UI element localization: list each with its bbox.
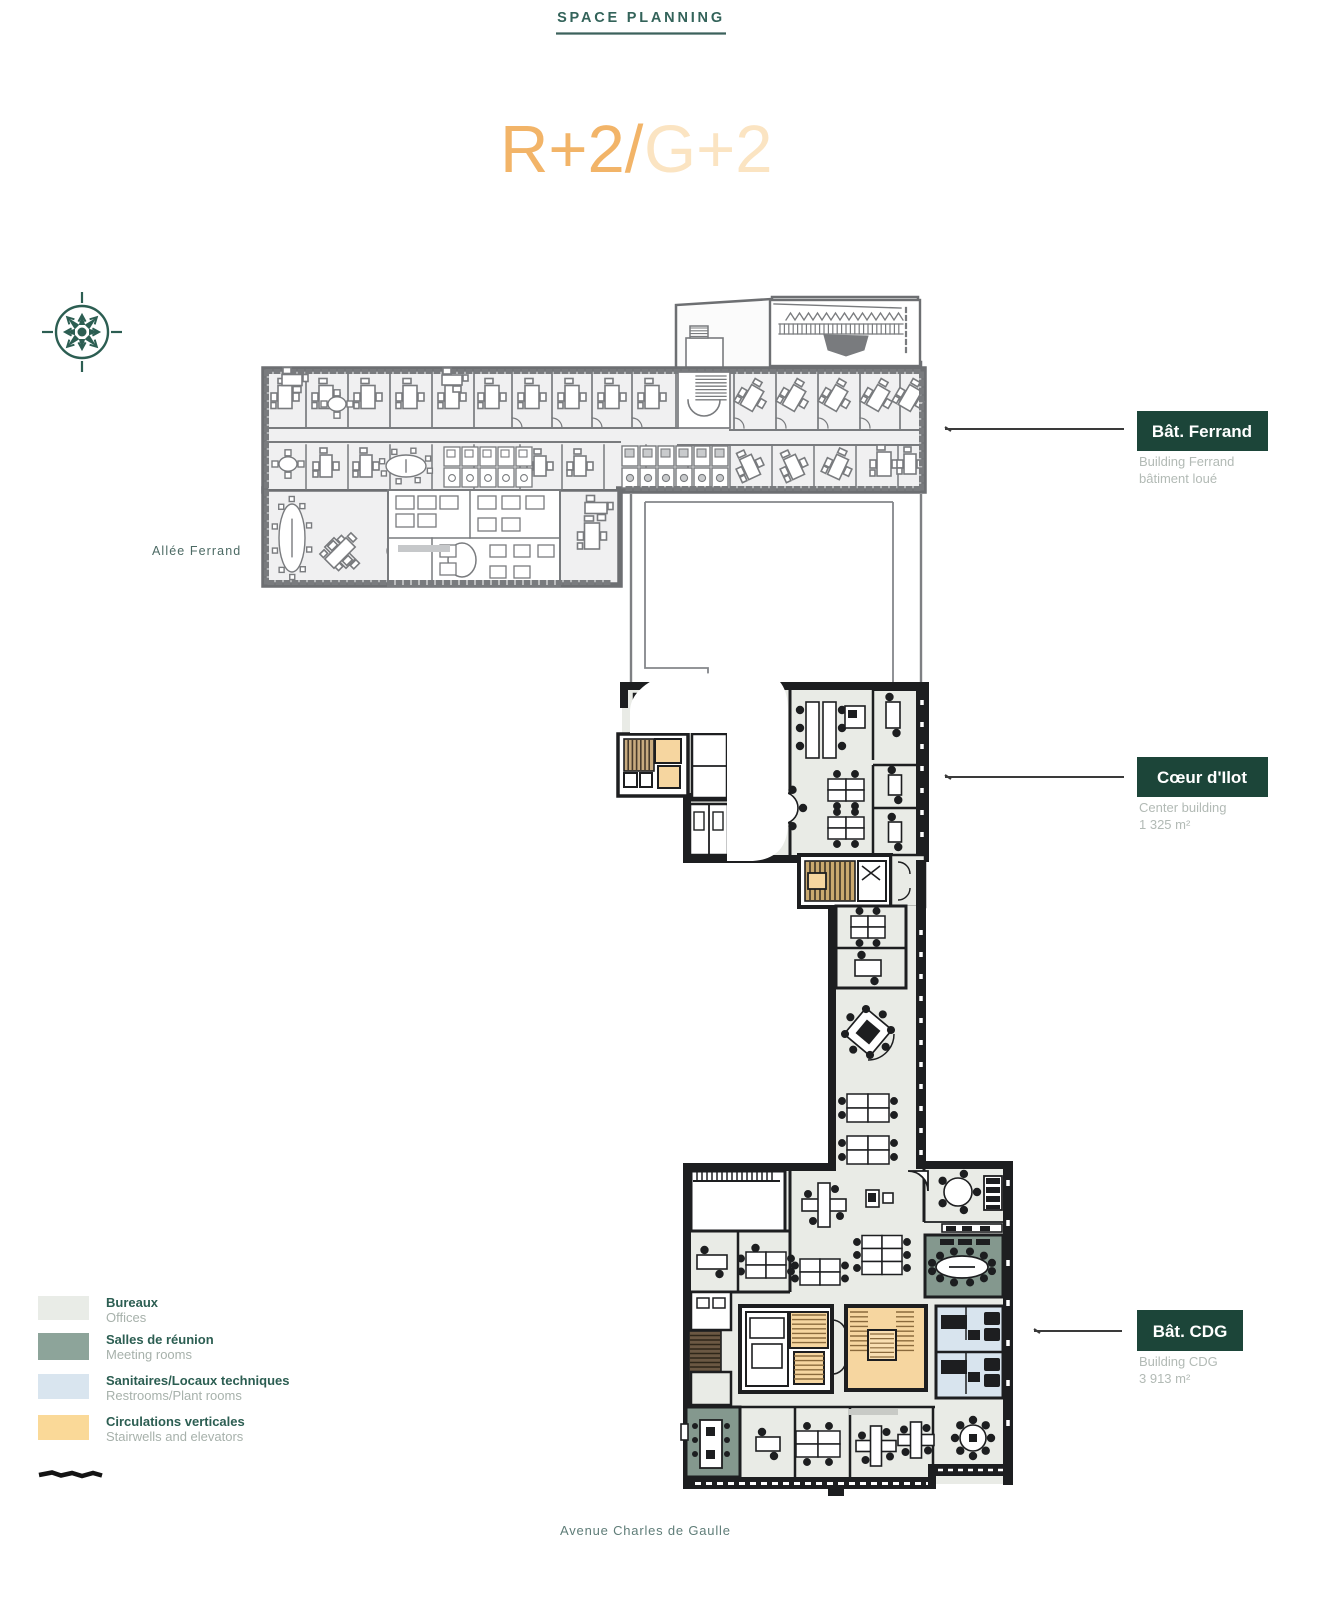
svg-text:Circulations verticales: Circulations verticales [106, 1414, 245, 1429]
svg-text:Sanitaires/Locaux techniques: Sanitaires/Locaux techniques [106, 1373, 290, 1388]
svg-text:SPACE PLANNING: SPACE PLANNING [557, 10, 725, 26]
svg-text:1 325 m²: 1 325 m² [1139, 817, 1191, 832]
svg-text:Building CDG: Building CDG [1139, 1354, 1218, 1369]
svg-text:Offices: Offices [106, 1310, 147, 1325]
svg-text:Meeting rooms: Meeting rooms [106, 1347, 192, 1362]
svg-text:Building Ferrand: Building Ferrand [1139, 454, 1234, 469]
svg-text:Center building: Center building [1139, 800, 1226, 815]
svg-text:Cœur d'Ilot: Cœur d'Ilot [1157, 768, 1247, 787]
svg-text:Bât. CDG: Bât. CDG [1153, 1322, 1228, 1341]
svg-text:Bureaux: Bureaux [106, 1295, 159, 1310]
svg-text:Restrooms/Plant rooms: Restrooms/Plant rooms [106, 1388, 242, 1403]
svg-text:G+2: G+2 [644, 112, 773, 187]
svg-text:Stairwells and elevators: Stairwells and elevators [106, 1429, 244, 1444]
svg-text:3 913 m²: 3 913 m² [1139, 1371, 1191, 1386]
svg-text:Allée Ferrand: Allée Ferrand [152, 544, 241, 558]
svg-text:Avenue Charles de Gaulle: Avenue Charles de Gaulle [560, 1523, 731, 1538]
svg-text:Salles de réunion: Salles de réunion [106, 1332, 214, 1347]
svg-text:Bât. Ferrand: Bât. Ferrand [1152, 422, 1252, 441]
svg-text:R+2/: R+2/ [500, 112, 644, 187]
svg-text:bâtiment loué: bâtiment loué [1139, 471, 1217, 486]
